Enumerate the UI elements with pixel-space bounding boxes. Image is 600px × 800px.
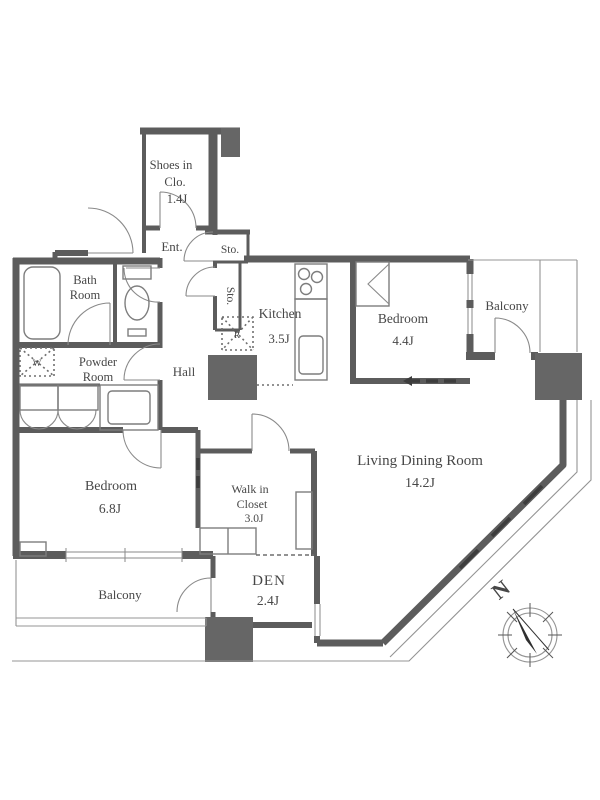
balcony-top-label: Balcony <box>485 298 529 313</box>
bedroom-small-label: Bedroom <box>378 311 429 326</box>
living-dining-area: 14.2J <box>405 476 436 491</box>
wic-label2: Closet <box>237 497 268 511</box>
pillar-east <box>535 353 582 400</box>
fridge-label: R <box>234 330 240 340</box>
closet-boxes <box>20 385 98 410</box>
floorplan-page: N Shoes in Clo. 1.4J Ent. Sto. Sto. Bath… <box>0 0 600 800</box>
bifold-closet-icon <box>356 262 389 306</box>
stove-icon <box>295 264 327 299</box>
bedroom-main-area: 6.8J <box>99 501 121 516</box>
bath-label2: Room <box>70 288 101 302</box>
bedroom-small-area: 4.4J <box>392 333 413 348</box>
pillar-south <box>205 617 253 662</box>
compass: N <box>487 575 562 667</box>
washer-label: W <box>33 358 42 368</box>
vanity-icon <box>100 385 158 430</box>
den-label: DEN <box>252 573 286 589</box>
bathtub-icon <box>24 267 60 339</box>
storage-top-label: Sto. <box>221 244 239 256</box>
kitchen-label: Kitchen <box>259 306 302 321</box>
kitchen-area: 3.5J <box>268 331 289 346</box>
wic-label: Walk in <box>231 482 268 496</box>
shoes-closet-area: 1.4J <box>167 192 188 206</box>
storage-side-label: Sto. <box>224 287 236 305</box>
bath-label: Bath <box>73 273 97 287</box>
balcony-bottom-label: Balcony <box>98 587 142 602</box>
living-dining-label: Living Dining Room <box>357 453 483 469</box>
den-area: 2.4J <box>257 593 279 608</box>
hall-label: Hall <box>173 364 196 379</box>
powder-label2: Room <box>83 370 114 384</box>
pillar-center <box>208 355 257 400</box>
wic-area: 3.0J <box>245 513 264 525</box>
entrance-label: Ent. <box>161 239 182 254</box>
shoes-closet-label: Shoes in <box>150 158 193 172</box>
toilet-icon <box>123 266 151 336</box>
shoes-closet-label2: Clo. <box>164 175 185 189</box>
bedroom-main-label: Bedroom <box>85 479 137 494</box>
powder-label: Powder <box>79 355 118 369</box>
floorplan-drawing: N Shoes in Clo. 1.4J Ent. Sto. Sto. Bath… <box>0 0 600 800</box>
